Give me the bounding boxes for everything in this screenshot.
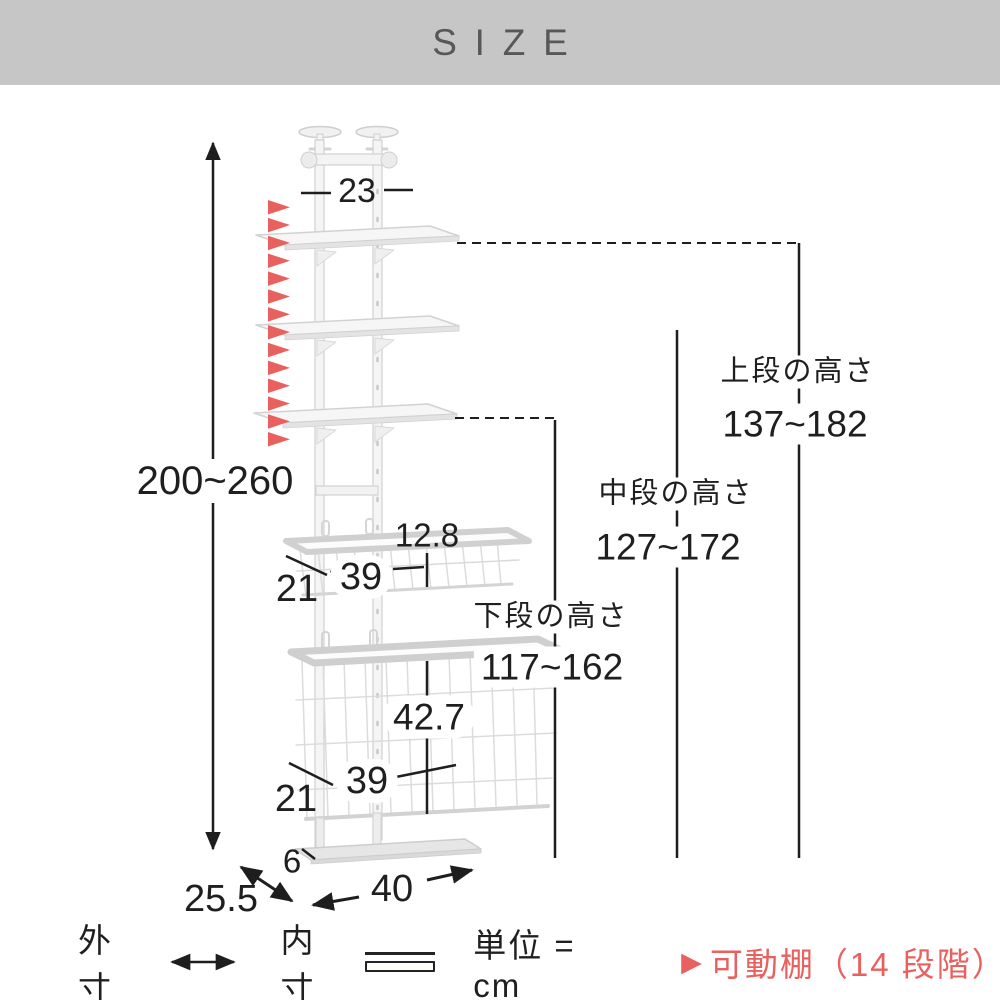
dim-base-width: 40 bbox=[367, 870, 417, 908]
dim-lower-basket-depth: 21 bbox=[275, 780, 317, 818]
dim-upper-basket-depth: 21 bbox=[276, 570, 318, 608]
level-top-range: 137~182 bbox=[715, 404, 874, 445]
legend-movable-label: 可動棚（14 段階） bbox=[710, 938, 1000, 986]
base-width-arrow-left bbox=[313, 897, 359, 905]
level-bottom-range: 117~162 bbox=[474, 647, 630, 688]
inner-dimension-line-icon bbox=[365, 952, 435, 972]
dim-overall-height: 200~260 bbox=[130, 459, 301, 503]
dim-lower-basket-width: 39 bbox=[336, 759, 398, 803]
level-middle-range: 127~172 bbox=[588, 527, 747, 568]
legend-inner-label: 内寸 bbox=[281, 914, 349, 1000]
size-diagram-page: SIZE bbox=[0, 0, 1000, 1000]
dim-upper-basket-height: 12.8 bbox=[395, 519, 459, 552]
outer-dimension-arrow-icon bbox=[162, 950, 242, 974]
movable-shelf-marker-icon: ▶ bbox=[681, 947, 702, 978]
legend-outer-label: 外寸 bbox=[78, 914, 146, 1000]
dim-top-width: 23 bbox=[338, 174, 376, 208]
pole-rung bbox=[316, 486, 378, 495]
dim-lower-basket-height: 42.7 bbox=[383, 696, 475, 739]
legend-unit-label: 単位 = cm bbox=[473, 919, 631, 1000]
dim-base-height: 6 bbox=[283, 845, 301, 878]
level-middle-label: 中段の高さ bbox=[591, 478, 760, 511]
dim-base-depth: 25.5 bbox=[184, 880, 258, 918]
base-foot bbox=[295, 813, 481, 864]
level-bottom-label: 下段の高さ bbox=[466, 601, 635, 634]
dim-upper-basket-width: 39 bbox=[330, 555, 392, 599]
level-top-label: 上段の高さ bbox=[713, 356, 882, 389]
base-width-arrow-right bbox=[427, 870, 472, 880]
legend: 外寸 内寸 単位 = cm ▶ 可動棚（14 段階） bbox=[78, 936, 1000, 988]
